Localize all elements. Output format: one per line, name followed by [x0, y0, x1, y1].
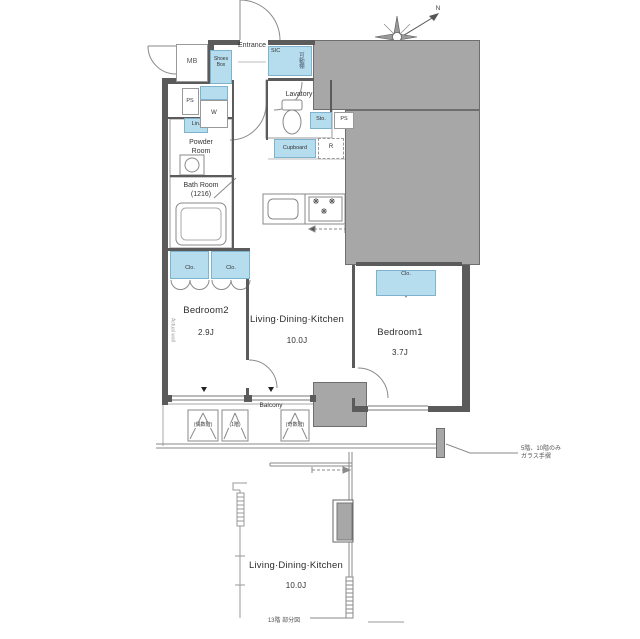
- closet-b2-right-label: Clo.: [226, 265, 236, 272]
- railing-note: 5階、10階のみ ガラス手摺: [521, 446, 561, 461]
- refrigerator-label: R: [329, 144, 333, 152]
- wall-segment: [352, 398, 355, 410]
- lower-ldk-name: Living·Dining·Kitchen: [249, 560, 343, 572]
- wall-annotation: Actual wall: [169, 318, 175, 342]
- bedroom1-name: Bedroom1: [377, 327, 422, 339]
- laundry-storage: [200, 86, 228, 100]
- north-label: N: [436, 5, 441, 13]
- balcony-label: Balcony: [259, 402, 282, 410]
- bath-room-label: Bath Room (1216): [183, 182, 218, 200]
- balcony-column: [313, 382, 367, 427]
- bedroom1-size: 3.7J: [392, 348, 408, 358]
- wall-segment: [268, 78, 314, 81]
- wall-segment: [356, 262, 462, 266]
- bedroom2-size: 2.9J: [198, 328, 214, 338]
- ldk-size: 10.0J: [287, 336, 308, 346]
- entrance-label: Entrance: [238, 42, 266, 51]
- floorplan-canvas: Entrance MB Shoes Box SIC 可動棚 Lavatory P…: [0, 0, 640, 639]
- wall-segment: [462, 265, 470, 412]
- hatch-first-label: (1階): [228, 422, 241, 428]
- hatch-even-label: (偶数階): [193, 422, 213, 428]
- burner-icon: ❋: [329, 197, 336, 207]
- burner-icon: ❋: [313, 197, 320, 207]
- wall-segment: [170, 175, 232, 177]
- ldk-name: Living·Dining·Kitchen: [250, 314, 344, 326]
- washer-label: W: [211, 110, 217, 118]
- wall-segment: [232, 80, 234, 250]
- lower-ldk-size: 10.0J: [286, 581, 307, 591]
- wall-segment: [162, 395, 172, 402]
- hatch-odd-label: (奇数階): [285, 422, 305, 428]
- sic-label: SIC: [271, 48, 280, 55]
- wall-segment: [162, 80, 168, 405]
- lavatory-label: Lavatory: [286, 91, 313, 100]
- bedroom2-name: Bedroom2: [183, 305, 228, 317]
- wall-segment: [246, 388, 249, 400]
- neighbor-structure-top: [313, 40, 480, 110]
- lower-plan-linework: [233, 452, 404, 622]
- wall-segment: [310, 395, 316, 402]
- wall-segment: [268, 40, 315, 45]
- sash-marker-left: [201, 387, 207, 392]
- linen-label: Lin.: [192, 121, 201, 128]
- wall-segment: [352, 265, 355, 368]
- railing-end-wall: [436, 428, 445, 458]
- lower-plan-column: [337, 503, 352, 540]
- wall-segment: [266, 80, 268, 140]
- shoes-box-label: Shoes Box: [211, 56, 231, 69]
- meter-box-label: MB: [187, 58, 198, 67]
- closet-b2-left-label: Clo.: [185, 265, 195, 272]
- sic-shelf-label: 可動棚: [297, 52, 304, 69]
- burner-icon: ❋: [321, 207, 328, 217]
- storage-label: Sto.: [316, 116, 326, 123]
- balcony-railing: [156, 444, 518, 453]
- wall-segment: [330, 80, 332, 112]
- sash-marker-right: [268, 387, 274, 392]
- neighbor-structure-right: [345, 110, 480, 265]
- closet-b1-label: Clo.: [401, 271, 411, 278]
- cupboard-label: Cupboard: [283, 145, 307, 152]
- wall-segment: [214, 40, 240, 45]
- ps-right-label: PS: [340, 116, 347, 123]
- lower-plan-caption: 13階 部分図: [268, 618, 300, 626]
- ps-left-label: PS: [186, 98, 193, 105]
- powder-room-label: Powder Room: [189, 139, 213, 157]
